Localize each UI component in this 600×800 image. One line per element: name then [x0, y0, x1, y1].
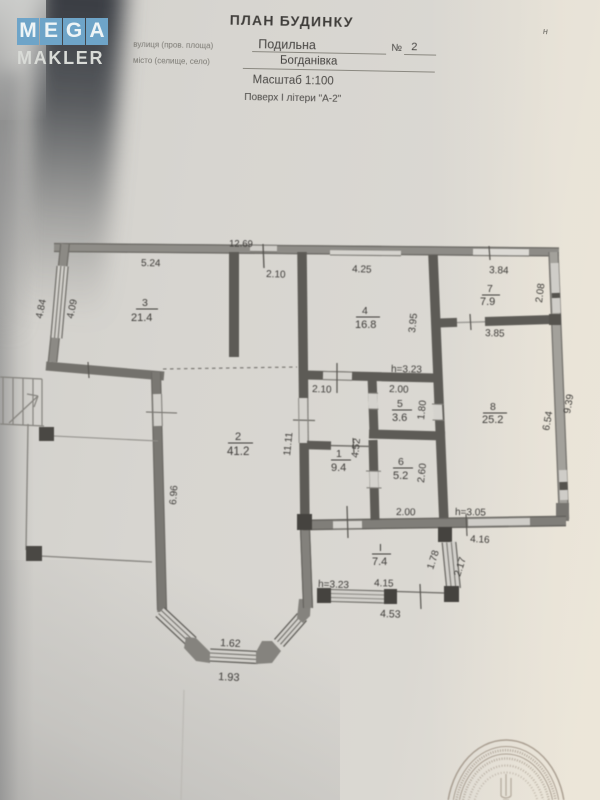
svg-text:7: 7	[487, 283, 493, 295]
svg-text:h=3.23: h=3.23	[318, 579, 350, 591]
svg-text:8: 8	[490, 401, 496, 413]
svg-text:I: I	[379, 542, 382, 554]
svg-text:7.4: 7.4	[372, 556, 387, 568]
svg-text:4.84: 4.84	[34, 298, 49, 320]
svg-text:1.80: 1.80	[416, 399, 429, 420]
svg-text:12.69: 12.69	[229, 239, 253, 250]
svg-text:4: 4	[362, 305, 368, 317]
svg-text:5.2: 5.2	[393, 470, 408, 482]
svg-text:6.96: 6.96	[168, 485, 180, 506]
svg-text:h=3.23: h=3.23	[391, 364, 422, 376]
svg-text:25.2: 25.2	[482, 414, 503, 426]
svg-text:6.54: 6.54	[541, 410, 555, 432]
svg-text:4.09: 4.09	[65, 298, 80, 320]
svg-text:1.62: 1.62	[220, 637, 241, 650]
svg-text:4.52: 4.52	[350, 437, 363, 458]
svg-text:h=3.05: h=3.05	[455, 507, 486, 519]
svg-text:2.60: 2.60	[416, 462, 429, 483]
svg-text:1.78: 1.78	[425, 549, 442, 571]
svg-text:2.00: 2.00	[389, 384, 409, 396]
svg-text:3: 3	[142, 297, 148, 309]
svg-text:4.15: 4.15	[374, 578, 394, 590]
svg-text:3.6: 3.6	[392, 412, 407, 424]
svg-text:41.2: 41.2	[227, 446, 249, 458]
svg-text:9.4: 9.4	[331, 462, 346, 474]
svg-text:4.53: 4.53	[380, 608, 401, 621]
svg-text:21.4: 21.4	[131, 312, 152, 324]
svg-text:3.84: 3.84	[489, 265, 509, 277]
svg-text:3.85: 3.85	[485, 328, 505, 340]
svg-text:2.08: 2.08	[534, 282, 547, 303]
svg-text:2.00: 2.00	[396, 507, 416, 518]
svg-text:7.9: 7.9	[480, 296, 495, 308]
svg-text:2.10: 2.10	[266, 269, 286, 281]
svg-text:5: 5	[397, 398, 403, 410]
svg-text:5.24: 5.24	[141, 258, 161, 269]
svg-text:16.8: 16.8	[355, 319, 376, 331]
svg-text:1: 1	[336, 448, 342, 460]
svg-text:2.10: 2.10	[312, 384, 332, 396]
svg-text:3.95: 3.95	[407, 312, 420, 333]
svg-text:4.16: 4.16	[470, 534, 490, 546]
svg-text:11.11: 11.11	[282, 431, 295, 456]
svg-text:4.25: 4.25	[352, 264, 372, 276]
svg-text:9.39: 9.39	[562, 393, 576, 415]
svg-text:2: 2	[235, 431, 241, 443]
svg-text:6: 6	[398, 456, 404, 468]
svg-text:1.93: 1.93	[218, 671, 240, 684]
